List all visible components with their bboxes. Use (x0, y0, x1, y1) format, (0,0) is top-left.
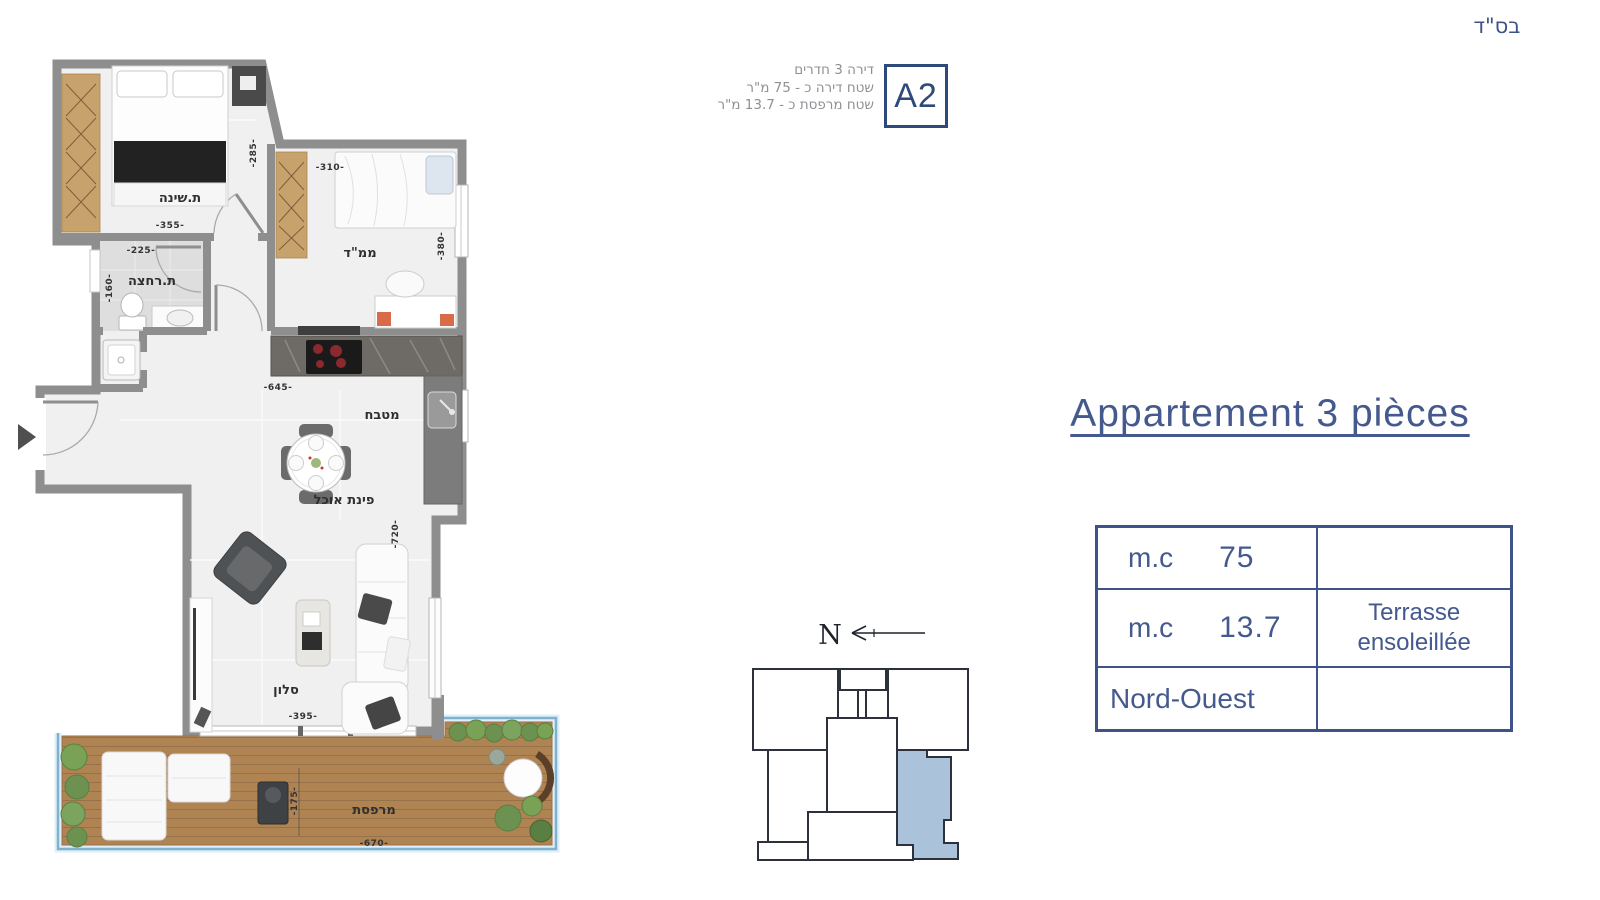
tv-icon (193, 608, 196, 700)
table-cell-area: m.c 75 (1098, 528, 1318, 590)
area-label: m.c (1098, 542, 1173, 574)
bathroom-window (90, 250, 100, 292)
north-label: N (818, 620, 842, 651)
dim-balcony-height: -175- (290, 787, 300, 816)
dim-mamad-height: -380- (437, 232, 447, 261)
bedroom-dresser (232, 66, 266, 106)
mamad-blast-door[interactable] (298, 326, 360, 335)
bedroom-label: ת.שינה (159, 191, 201, 206)
info-line-balcony-area: שטח מרפסת כ - 13.7 מ"ר (634, 97, 874, 115)
entrance-opening (34, 398, 46, 470)
unit-block (758, 842, 808, 860)
dim-living-width: -395- (289, 712, 318, 722)
orientation-label: Nord-Ouest (1098, 683, 1255, 715)
table-cell-terrace-note: Terrasse ensoleillée (1318, 590, 1510, 668)
mamad-wardrobe (276, 152, 307, 258)
coffee-table (296, 600, 330, 666)
info-line-area: שטח דירה כ - 75 מ"ר (634, 80, 874, 98)
dim-bedroom-height: -285- (249, 139, 259, 168)
dim-bathroom-width: -225- (127, 246, 156, 256)
dim-living-height: -720- (391, 520, 401, 549)
north-arrow: N (818, 620, 925, 651)
dim-bedroom-width: -355- (156, 221, 185, 231)
core-stem (858, 690, 866, 720)
kitchen-sink (428, 392, 456, 428)
living-label: סלון (273, 683, 299, 698)
kitchen-label: מטבח (364, 408, 399, 423)
bathroom-label: ת.רחצה (128, 274, 176, 289)
highlighted-unit-a2 (897, 750, 958, 859)
page: בס"ד דירה 3 חדרים שטח דירה כ - 75 מ"ר שט… (0, 0, 1600, 900)
building-footprint (753, 669, 968, 860)
dim-kitchen-width: -645- (264, 383, 293, 393)
unit-block (753, 669, 838, 750)
unit-code: A2 (894, 77, 938, 116)
terrace-value: 13.7 (1219, 611, 1281, 645)
desk-chair (386, 271, 424, 297)
shower (103, 340, 140, 380)
table-cell-area-note (1318, 528, 1510, 590)
terrace-label: m.c (1098, 612, 1173, 644)
page-title: Appartement 3 pièces (1030, 392, 1510, 436)
balcony-side-table (258, 782, 288, 824)
area-value: 75 (1219, 541, 1254, 575)
tv-console (190, 598, 212, 732)
table-cell-terrace: m.c 13.7 (1098, 590, 1318, 668)
entrance-marker-icon (18, 424, 36, 450)
dining-label: פינת אוכל (314, 493, 375, 508)
apartment-info-block: דירה 3 חדרים שטח דירה כ - 75 מ"ר שטח מרפ… (634, 62, 874, 115)
cooktop (306, 340, 362, 374)
spec-table: m.c 75 m.c 13.7 Terrasse ensoleillée Nor… (1095, 525, 1513, 732)
bedroom-bed (112, 66, 228, 206)
unit-code-box: A2 (884, 64, 948, 128)
key-plan: N (730, 595, 990, 880)
dim-balcony-width: -670- (360, 839, 389, 849)
dim-mamad-width: -310- (316, 163, 345, 173)
bsd-text: בס"ד (1462, 14, 1532, 38)
unit-block (827, 718, 897, 812)
terrace-note: Terrasse ensoleillée (1318, 598, 1510, 658)
unit-block (888, 669, 968, 750)
info-line-rooms: דירה 3 חדרים (634, 62, 874, 80)
table-cell-orientation: Nord-Ouest (1098, 668, 1318, 729)
floor-plan: ת.שינה ממ"ד ת.רחצה מטבח פינת אוכל סלון מ… (0, 0, 600, 900)
balcony-wall-stub (432, 695, 444, 740)
balcony (58, 718, 556, 849)
core-block (840, 669, 886, 690)
mamad-bed (335, 152, 456, 228)
mamad-label: ממ"ד (343, 246, 376, 261)
table-cell-orientation-note (1318, 668, 1510, 729)
balcony-label: מרפסת (352, 803, 396, 818)
bedroom-wardrobe (62, 74, 100, 232)
dim-bathroom-height: -160- (105, 274, 115, 303)
